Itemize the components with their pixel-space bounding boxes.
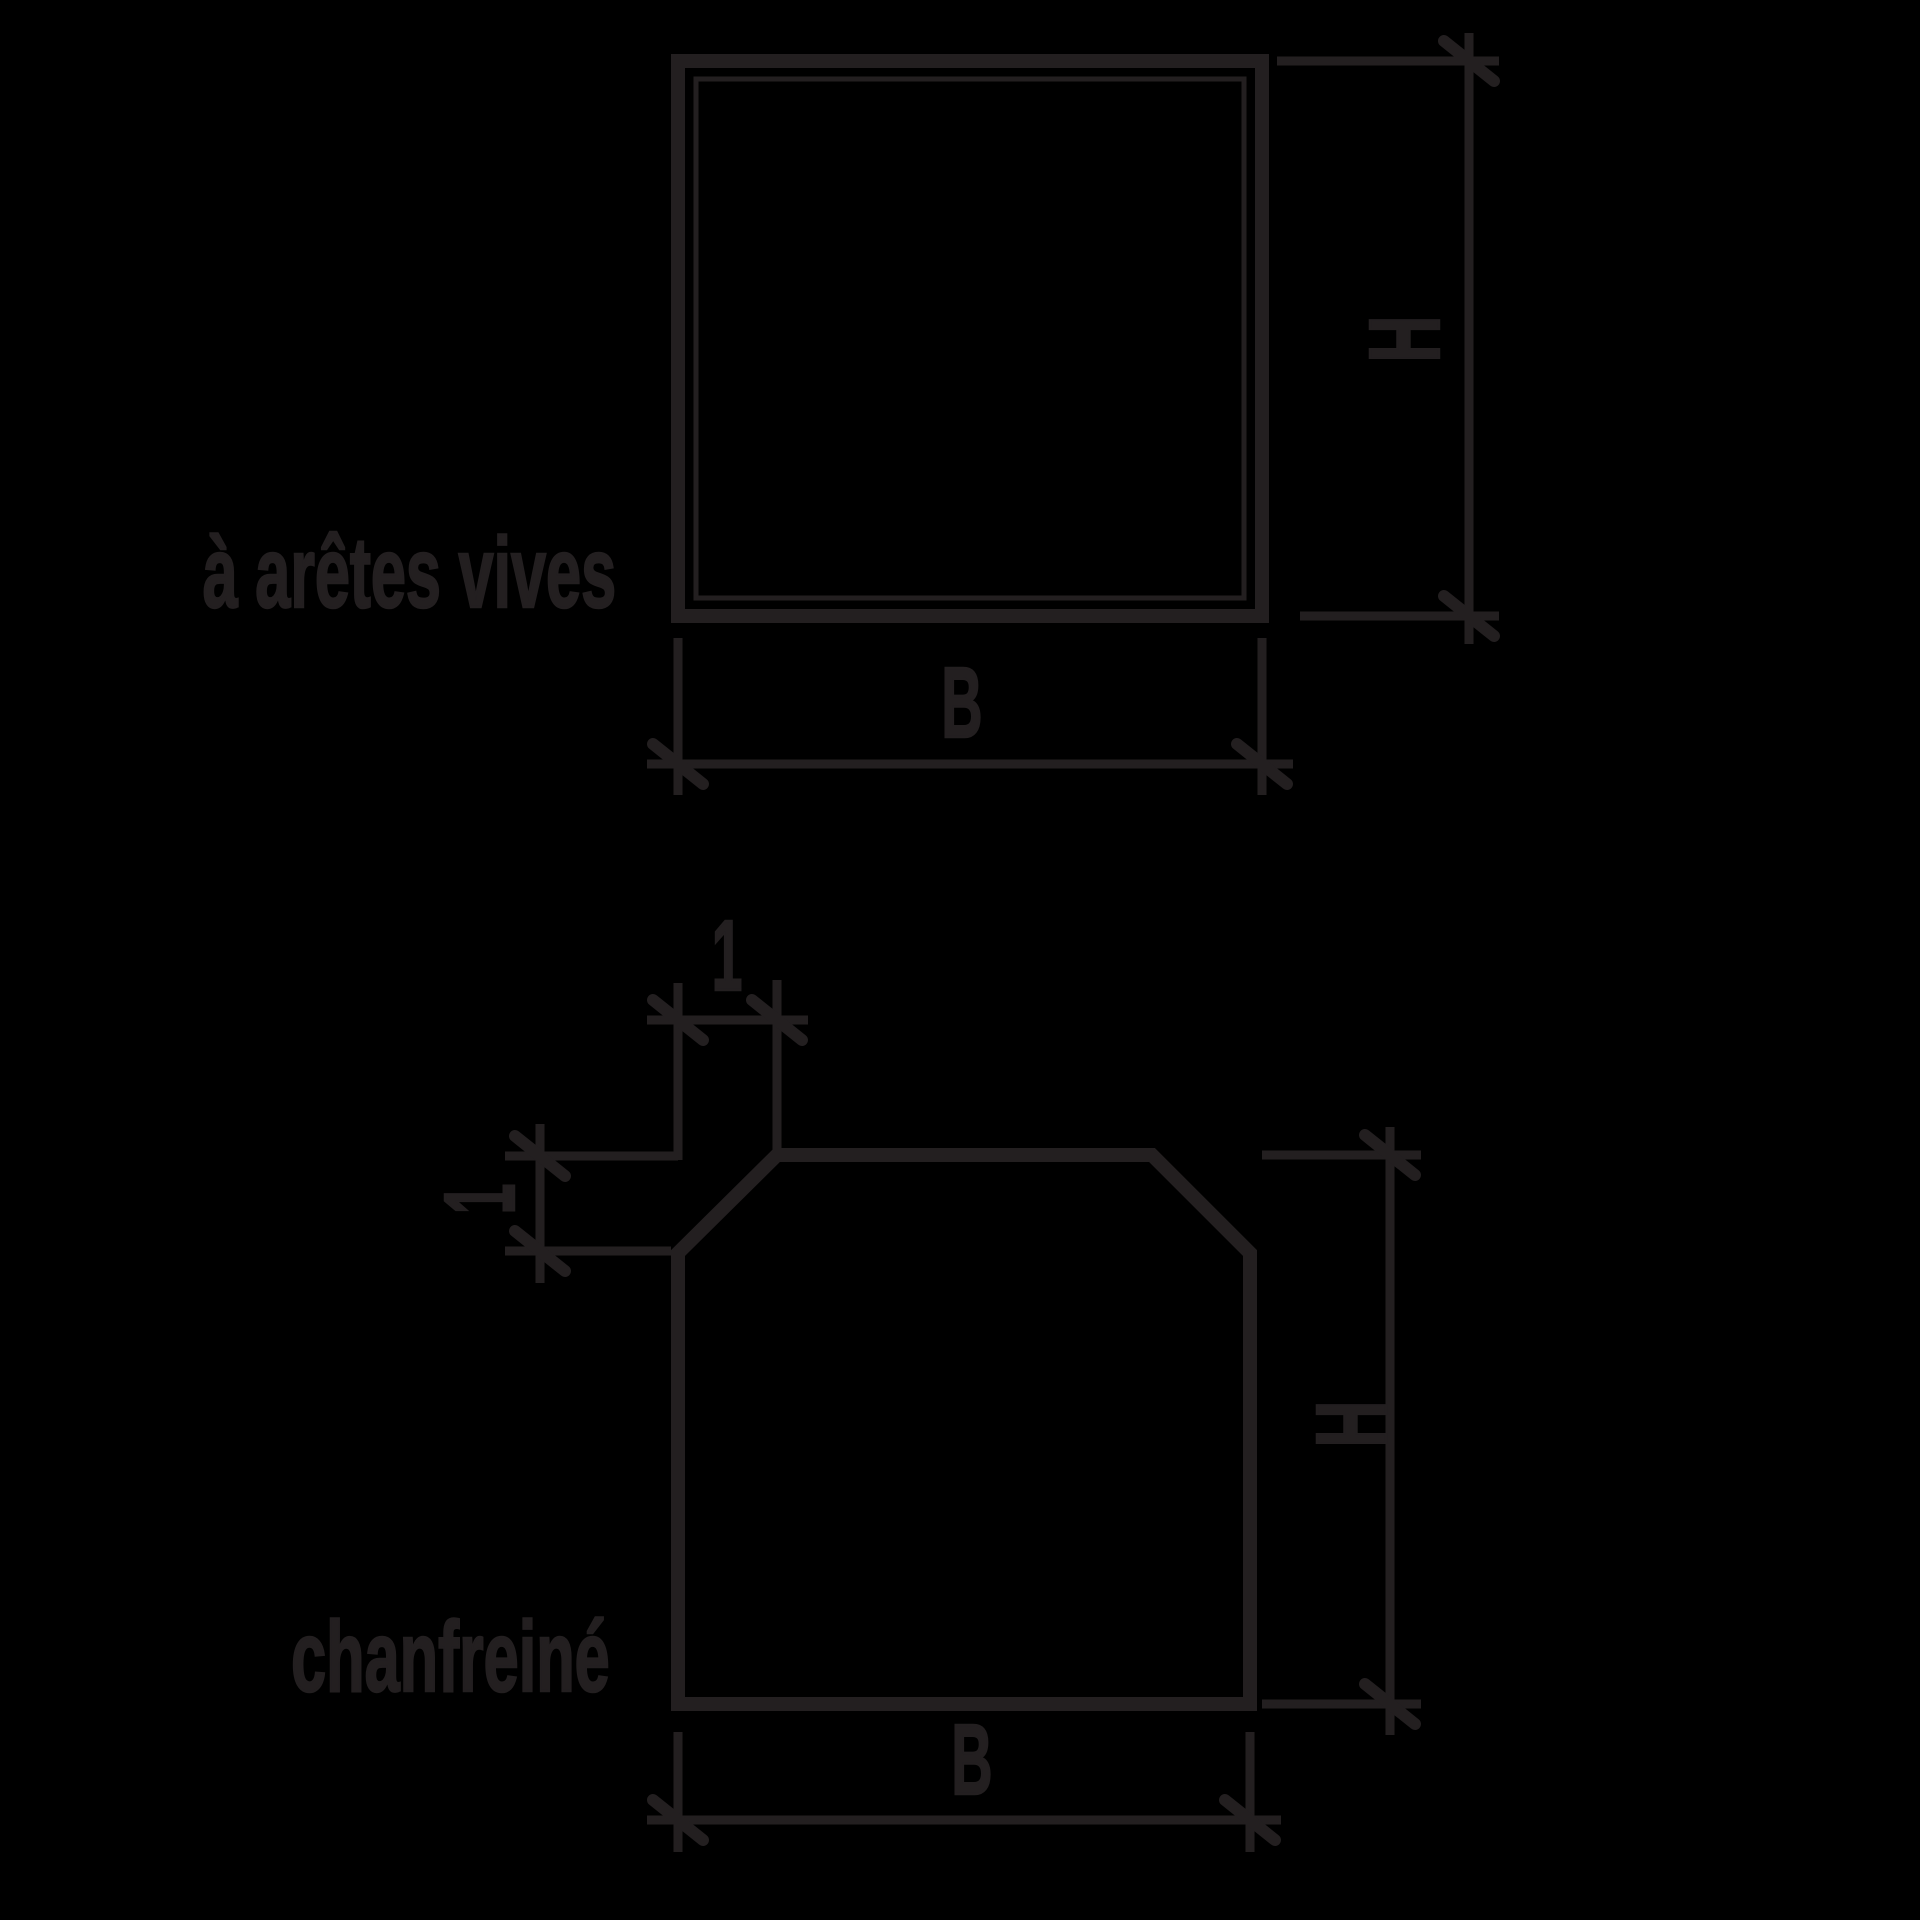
width-dimension-label-chamfered: B bbox=[951, 1710, 992, 1810]
chamfered-caption: chanfreiné bbox=[291, 1607, 610, 1707]
chamfered-profile-outline bbox=[678, 1155, 1250, 1704]
height-dimension-label: H bbox=[1355, 316, 1455, 363]
sharp-edge-profile-figure bbox=[647, 33, 1499, 795]
sharp-edges-caption: à arêtes vives bbox=[203, 523, 616, 623]
chamfer-side-dimension-label: 1 bbox=[430, 1184, 530, 1215]
square-profile-inner-line bbox=[696, 79, 1244, 598]
width-dimension-label: B bbox=[941, 653, 982, 753]
chamfer-top-dimension-label: 1 bbox=[712, 906, 743, 1006]
height-dimension-label-chamfered: H bbox=[1302, 1401, 1402, 1448]
square-profile-outline bbox=[678, 61, 1262, 616]
profile-drawing-canvas bbox=[0, 0, 1920, 1920]
technical-drawing-page: à arêtes vives H B chanfreiné 1 1 H B bbox=[0, 0, 1920, 1920]
